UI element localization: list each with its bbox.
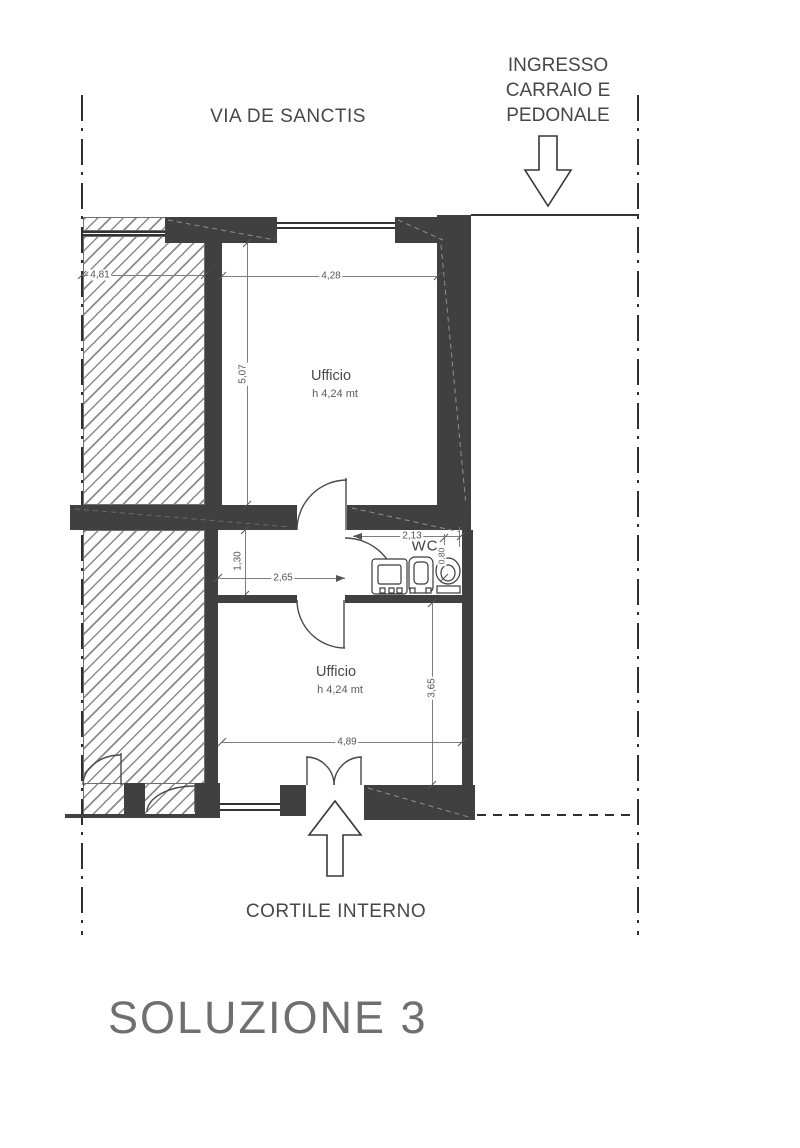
wall-bottom-pier-a: [124, 783, 145, 817]
arrow-down-icon: [525, 136, 571, 206]
bidet-base: [437, 586, 460, 593]
room-label-office-top: Ufficio: [311, 368, 351, 384]
dim-text-corridor-width: 2,65: [271, 573, 294, 584]
sink-icon: [372, 559, 407, 594]
wall-mid-left: [70, 505, 297, 530]
wall-hall-bottom: [218, 595, 297, 603]
dim-ext-wc-width: [459, 527, 460, 547]
courtyard-label: CORTILE INTERNO: [246, 901, 426, 923]
door-arc-office-top: [297, 480, 347, 530]
wall-right-upper: [437, 215, 471, 530]
wall-wc-bottom: [345, 595, 462, 603]
dim-text-office-top-depth: 5,07: [238, 362, 249, 385]
wall-left-lower: [205, 530, 218, 785]
dim-text-office-bottom-width: 4,89: [335, 737, 358, 748]
hatch-strip-top: [83, 217, 168, 231]
door-arc-office-bottom: [297, 600, 345, 648]
hatch-double-line-1: [82, 231, 168, 233]
wall-bottom-sill-line: [65, 814, 220, 818]
double-door-arc-right: [334, 757, 362, 785]
wall-bottom-pier-b: [195, 783, 220, 816]
window-top-line-1: [277, 222, 395, 224]
arrow-up-icon: [309, 801, 361, 876]
street-edge-line: [471, 214, 639, 216]
sink-tap-3: [397, 588, 402, 593]
dim-text-corridor-depth: 1,30: [233, 549, 244, 572]
boundary-line-right: [637, 95, 639, 935]
dim-text-office-top-width: 4,28: [319, 271, 342, 282]
room-note-office-bottom: h 4,24 mt: [317, 684, 363, 696]
sink-tap-1: [380, 588, 385, 593]
window-bottom-line-1: [220, 803, 280, 805]
dim-text-office-bottom-depth: 3,65: [427, 676, 438, 699]
window-top-line-2: [277, 227, 395, 229]
entrance-label-line-3: PEDONALE: [492, 103, 624, 128]
wall-bottom-right-block: [364, 785, 475, 820]
courtyard-dashed-line: [477, 814, 637, 816]
door-arc-wc: [345, 538, 397, 590]
dim-text-adjacent-width: 4,81: [88, 270, 111, 281]
toilet-foot-1: [410, 588, 415, 593]
double-door-arc-left: [306, 757, 334, 785]
entrance-label-line-1: INGRESSO: [492, 53, 624, 78]
street-label: VIA DE SANCTIS: [210, 106, 366, 128]
toilet-bowl: [414, 562, 428, 584]
entrance-label: INGRESSO CARRAIO E PEDONALE: [492, 53, 624, 128]
hatch-block-lower: [83, 530, 205, 785]
wall-wc-top: [347, 505, 462, 530]
window-bottom-line-2: [220, 809, 280, 811]
room-note-office-top: h 4,24 mt: [312, 388, 358, 400]
wall-right-lower: [462, 530, 473, 820]
dim-text-wc-width: 2,13: [400, 531, 423, 542]
dim-line-corridor-depth: [245, 530, 246, 595]
solution-title: SOLUZIONE 3: [108, 992, 428, 1044]
floor-plan-canvas: VIA DE SANCTIS INGRESSO CARRAIO E PEDONA…: [0, 0, 800, 1148]
toilet-foot-2: [426, 588, 431, 593]
wall-bottom-pier-c: [280, 785, 306, 816]
wall-left-upper: [205, 230, 222, 530]
toilet-icon: [409, 557, 433, 593]
sink-tap-2: [389, 588, 394, 593]
wc-fixtures: [372, 557, 460, 594]
room-label-office-bottom: Ufficio: [316, 664, 356, 680]
entrance-label-line-2: CARRAIO E: [492, 78, 624, 103]
dim-text-wc-fixture: 0,80: [437, 546, 446, 567]
sink-basin: [378, 565, 401, 584]
